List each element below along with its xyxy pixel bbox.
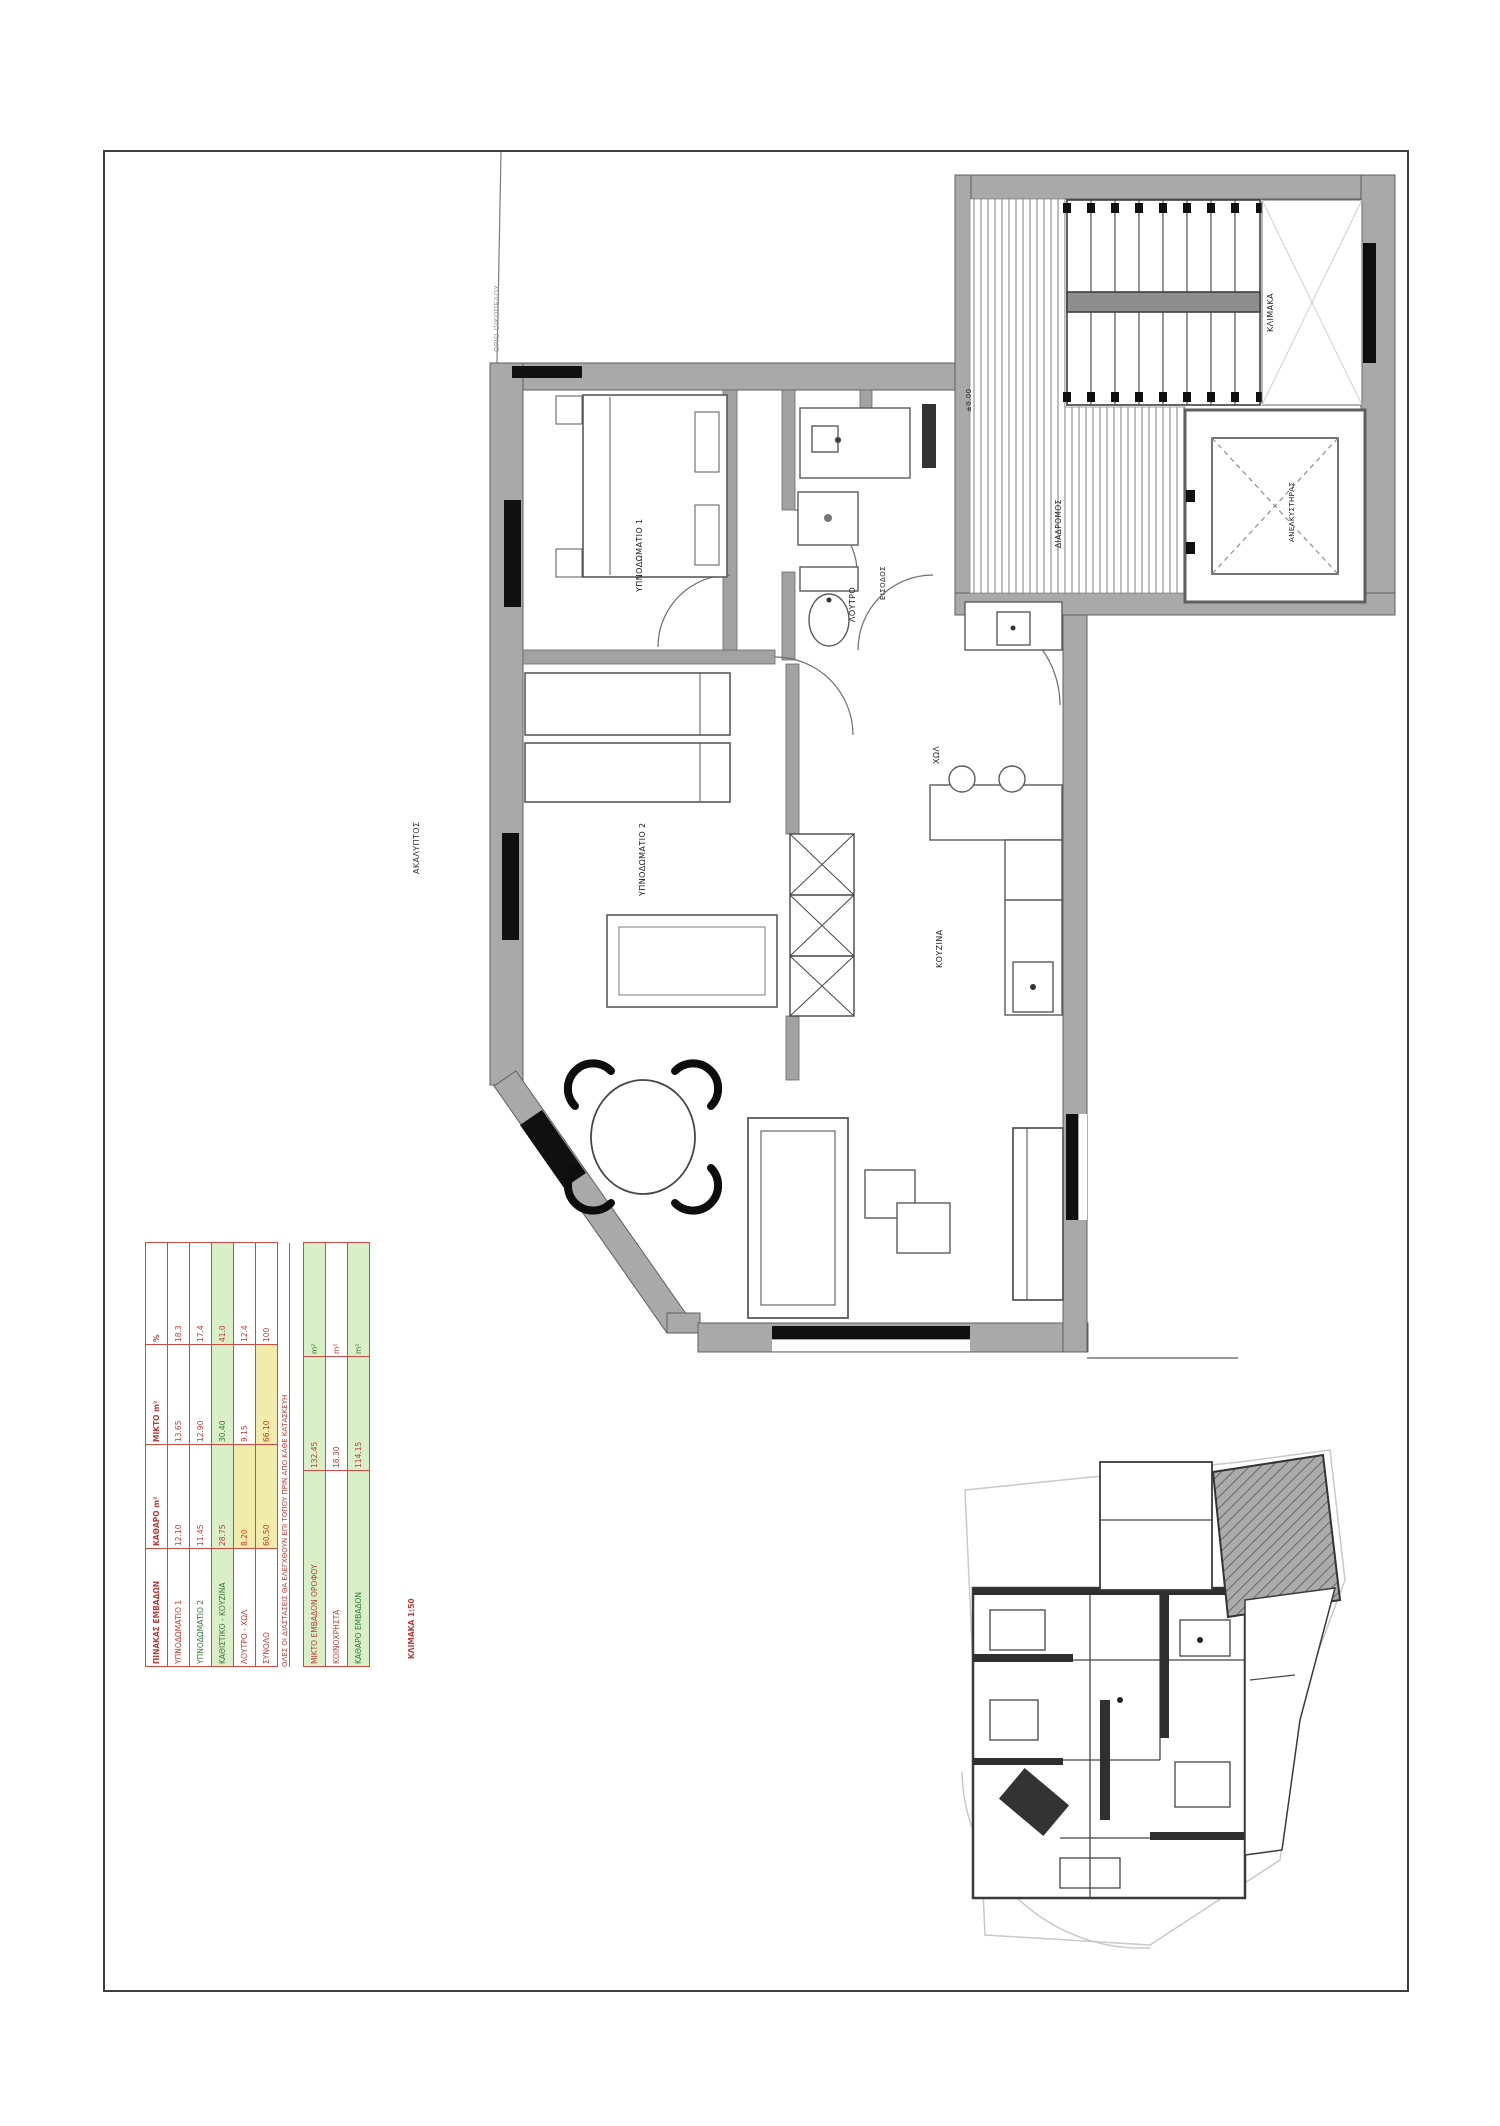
table-cell: 60.50	[256, 1445, 278, 1549]
table-cell: 30.40	[212, 1345, 234, 1445]
table-cell: 12.90	[190, 1345, 212, 1445]
hall-label: ΧΩΛ	[932, 746, 942, 764]
table-cell: 66.10	[256, 1345, 278, 1445]
table-cell: ΛΟΥΤΡΟ - ΧΩΛ	[234, 1549, 256, 1667]
table-cell: m²	[304, 1243, 326, 1357]
living-furniture	[748, 1118, 1063, 1318]
table-cell: 9.15	[234, 1345, 256, 1445]
table-cell: ΚΑΘΙΣΤΙΚΟ - ΚΟΥΖΙΝΑ	[212, 1549, 234, 1667]
table-cell: ΜΙΚΤΟ ΕΜΒΑΔΟΝ ΟΡΟΦΟΥ	[304, 1471, 326, 1667]
open-area-label: ΑΚΑΛΥΠΤΟΣ	[412, 822, 422, 874]
light-well	[1262, 200, 1362, 405]
table-cell: 114.15	[348, 1357, 370, 1471]
scale-note: ΚΛΙΜΑΚΑ 1:50	[407, 1598, 416, 1659]
table-cell: 41.0	[212, 1243, 234, 1345]
bedroom2-label: ΥΠΝΟΔΩΜΑΤΙΟ 2	[638, 822, 648, 896]
key-plan	[962, 1450, 1345, 1948]
table-cell: 8.20	[234, 1445, 256, 1549]
kitchen-fixtures	[930, 602, 1062, 1015]
bedroom1-label: ΥΠΝΟΔΩΜΑΤΙΟ 1	[635, 518, 645, 592]
table-cell: 28.75	[212, 1445, 234, 1549]
table-cell: m²	[326, 1243, 348, 1357]
table-header-cell: ΜΙΚΤΟ m²	[146, 1345, 168, 1445]
table-header-cell: ΠΙΝΑΚΑΣ ΕΜΒΑΔΩΝ	[146, 1549, 168, 1667]
table-cell: 17.4	[190, 1243, 212, 1345]
elevator	[1185, 410, 1365, 602]
corridor-label: ΔΙΑΔΡΟΜΟΣ	[1054, 499, 1064, 548]
area-table-summary: ΜΙΚΤΟ ΕΜΒΑΔΟΝ ΟΡΟΦΟΥ132.45m²ΚΟΙΝΟΧΡΗΣΤΑ1…	[303, 1242, 370, 1667]
table-cell: ΥΠΝΟΔΩΜΑΤΙΟ 2	[190, 1549, 212, 1667]
landing-level-label: ±0.00	[964, 389, 974, 412]
bathroom-label: ΛΟΥΤΡΟ	[848, 587, 858, 622]
kitchen-label: ΚΟΥΖΙΝΑ	[935, 929, 945, 968]
boundary-label: ΟΡΙΟ ΟΙΚΟΠΕΔΟΥ	[492, 285, 502, 352]
table-cell: 11.45	[190, 1445, 212, 1549]
area-table-main: ΠΙΝΑΚΑΣ ΕΜΒΑΔΩΝΚΑΘΑΡΟ m²ΜΙΚΤΟ m²%ΥΠΝΟΔΩΜ…	[145, 1242, 278, 1667]
table-cell: 13.65	[168, 1345, 190, 1445]
table-header-cell: %	[146, 1243, 168, 1345]
staircase	[1063, 200, 1264, 405]
table-cell: ΚΑΘΑΡΟ ΕΜΒΑΔΟΝ	[348, 1471, 370, 1667]
table-cell: ΥΠΝΟΔΩΜΑΤΙΟ 1	[168, 1549, 190, 1667]
area-schedule: ΠΙΝΑΚΑΣ ΕΜΒΑΔΩΝΚΑΘΑΡΟ m²ΜΙΚΤΟ m²%ΥΠΝΟΔΩΜ…	[145, 1243, 437, 1667]
drawing-sheet: ΥΠΝΟΔΩΜΑΤΙΟ 1 ΥΠΝΟΔΩΜΑΤΙΟ 2 ΛΟΥΤΡΟ ΕΙΣΟΔ…	[0, 0, 1500, 2126]
table-header-cell: ΚΑΘΑΡΟ m²	[146, 1445, 168, 1549]
table-cell: 100	[256, 1243, 278, 1345]
wardrobe	[790, 834, 854, 1016]
entry-label: ΕΙΣΟΔΟΣ	[878, 566, 888, 600]
bedroom2-furniture	[525, 673, 777, 1007]
table-cell: m²	[348, 1243, 370, 1357]
stairwell-label: ΚΛΙΜΑΚΑ	[1266, 293, 1276, 332]
table-cell: 12.4	[234, 1243, 256, 1345]
elevator-label: ΑΝΕΛΚΥΣΤΗΡΑΣ	[1287, 482, 1297, 542]
table-cell: 12.10	[168, 1445, 190, 1549]
table-cell: 18.30	[326, 1357, 348, 1471]
table-cell: ΚΟΙΝΟΧΡΗΣΤΑ	[326, 1471, 348, 1667]
table-cell: 132.45	[304, 1357, 326, 1471]
table-cell: ΣΥΝΟΛΟ	[256, 1549, 278, 1667]
table-caption: ΟΛΕΣ ΟΙ ΔΙΑΣΤΑΣΕΙΣ ΘΑ ΕΛΕΓΧΘΟΥΝ ΕΠΙ ΤΟΠΟ…	[281, 1243, 290, 1667]
table-cell: 18.3	[168, 1243, 190, 1345]
